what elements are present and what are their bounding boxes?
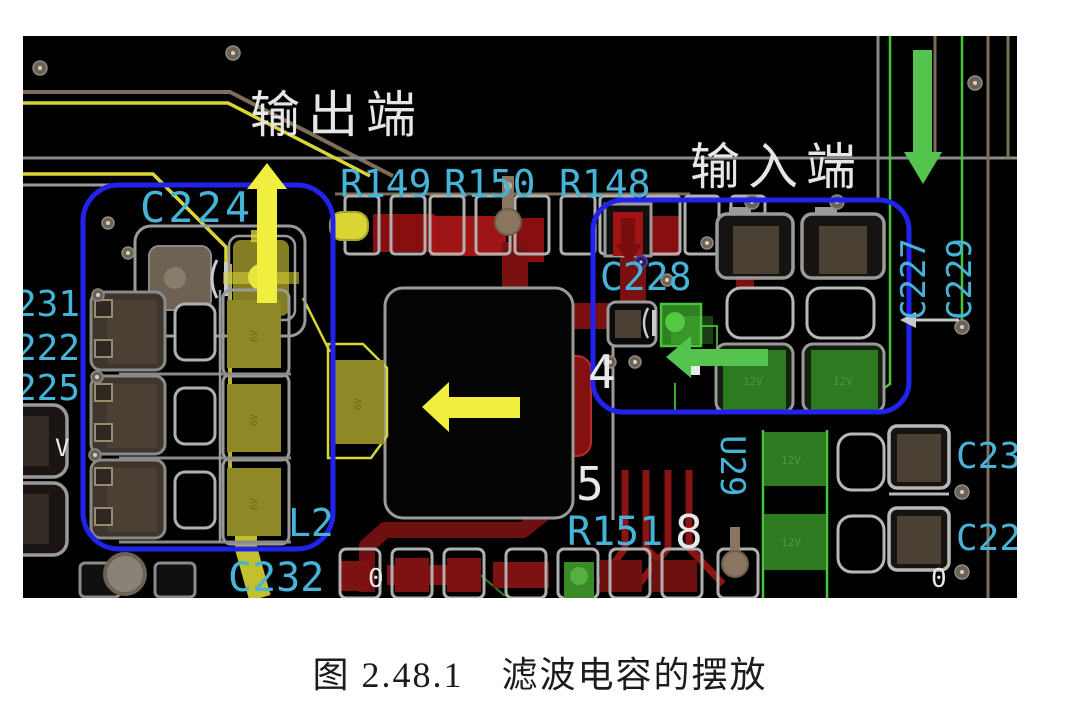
pad-zero-mark: 0 (931, 564, 947, 594)
right-box-components: 12V 12V (605, 204, 884, 412)
part-marking: 12V (781, 536, 801, 549)
pad-zero-mark: 0 (368, 564, 384, 594)
pin-number-8: 8 (675, 505, 703, 559)
designator-c227: C227 (894, 238, 934, 320)
designator-edge2: 222 (23, 328, 80, 369)
designator-c232: C232 (228, 555, 324, 598)
designator-c228: C228 (600, 255, 692, 299)
designator-r149: R149 (340, 162, 432, 206)
input-terminal-label: 输入端 (690, 139, 864, 195)
designator-l2: L2 (288, 501, 334, 545)
part-marking: 12V (781, 454, 801, 467)
designator-edge3: 225 (23, 368, 80, 409)
part-marking: 6V (249, 498, 260, 510)
pcb-layout-figure: 6V (23, 36, 1017, 598)
pin-number-4: 4 (588, 345, 616, 399)
designator-edge1: 231 (23, 284, 80, 325)
designator-c224: C224 (140, 183, 253, 232)
figure-caption: 图 2.48.1 滤波电容的摆放 (0, 646, 1080, 698)
designator-u29: U29 (712, 435, 752, 496)
designator-c23: C23 (956, 436, 1017, 477)
document-page: 6V (0, 0, 1080, 722)
part-marking: 12V (833, 375, 853, 388)
v-mark: V (55, 434, 69, 462)
designator-r151: R151 (567, 509, 663, 555)
designator-r150: R150 (444, 162, 536, 206)
pin-number-5: 5 (576, 457, 604, 511)
part-marking: 6V (353, 398, 364, 410)
output-terminal-label: 输出端 (250, 87, 424, 143)
part-marking: 6V (249, 330, 260, 342)
bottom-right-cap-bank: 12V 12V (764, 426, 949, 572)
part-marking: 6V (249, 414, 260, 426)
designator-c229: C229 (940, 238, 980, 320)
part-marking: 12V (743, 375, 763, 388)
designator-r148: R148 (559, 162, 651, 206)
left-box-cap-rows: 6V 6V (91, 290, 291, 544)
designator-c22: C22 (956, 518, 1017, 559)
